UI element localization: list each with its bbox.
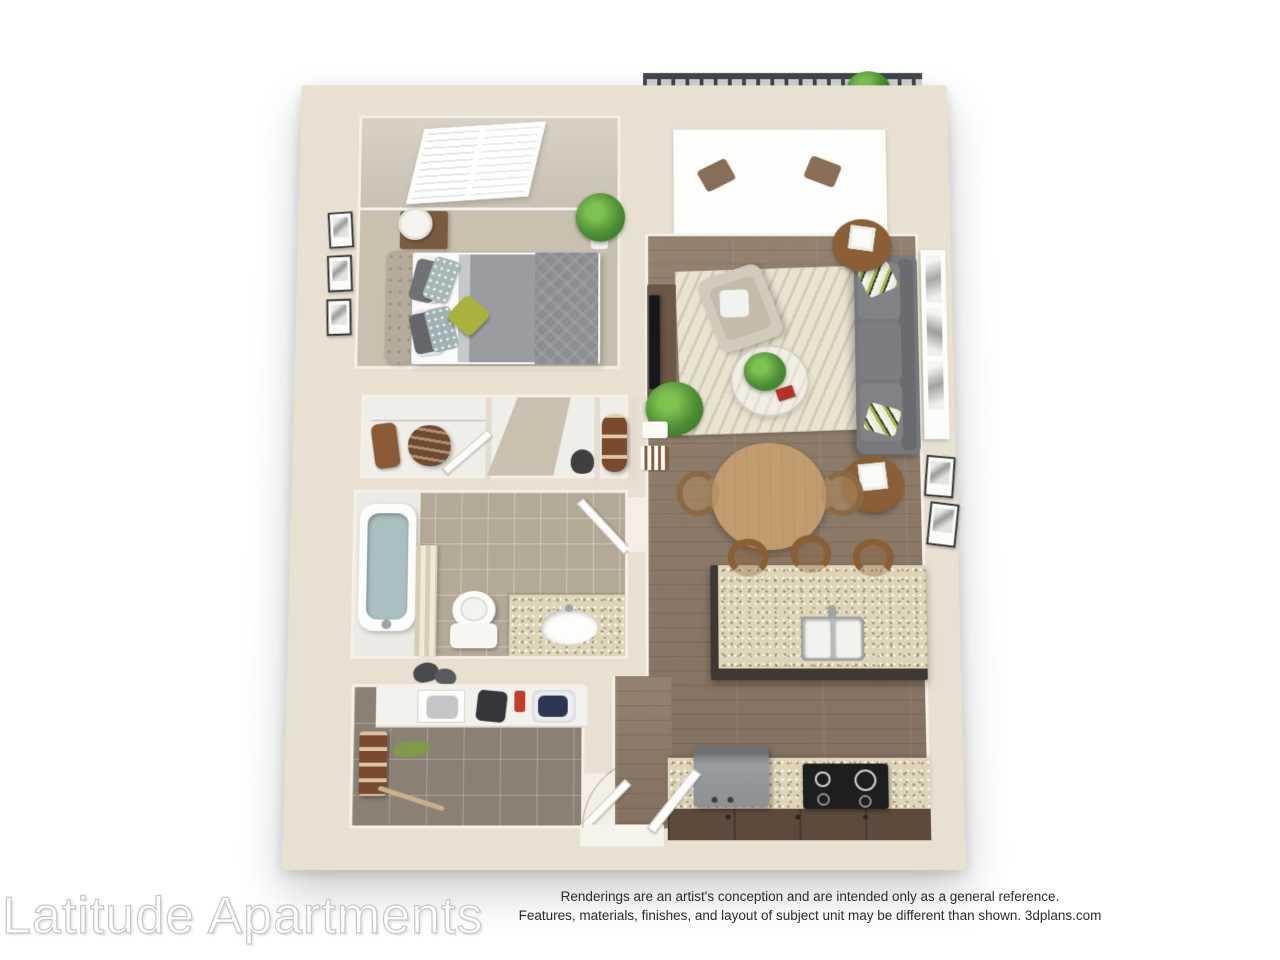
hanging-clothes <box>370 422 401 470</box>
disclaimer-line-2: Features, materials, finishes, and layou… <box>460 907 1160 926</box>
fire-extinguisher-icon <box>514 691 525 712</box>
linen-towels-striped <box>641 446 668 470</box>
bathtub-water <box>366 513 409 619</box>
duffel-bag <box>602 414 627 472</box>
bathroom-vanity <box>509 595 625 656</box>
watermark-logo: Latitude Apartments <box>2 886 484 946</box>
utility-counter <box>376 687 588 728</box>
bathroom-door-threshold <box>628 497 648 552</box>
mop-handle <box>377 785 445 811</box>
bed-headboard <box>384 251 413 364</box>
barstool <box>790 535 832 573</box>
bedroom-wall-art <box>328 211 355 249</box>
vanity-sink <box>540 610 597 644</box>
toilet-tank <box>450 623 497 648</box>
coffee-table-plant <box>744 352 787 391</box>
disclaimer-line-1: Renderings are an artist's conception an… <box>460 888 1160 907</box>
building-shell <box>282 85 966 870</box>
desk-chair <box>571 449 594 473</box>
dining-chair <box>820 471 864 516</box>
disclaimer: Renderings are an artist's conception an… <box>460 888 1160 925</box>
planter-box <box>848 225 876 252</box>
bed <box>411 253 600 364</box>
tub-faucet-icon <box>381 620 391 630</box>
barstool <box>728 539 769 577</box>
refrigerator <box>693 746 769 807</box>
sofa <box>854 255 921 454</box>
tv-icon <box>649 295 660 389</box>
apartment-3d-floor-plan <box>278 73 978 870</box>
bedroom-wall-art <box>327 255 353 293</box>
dining-wall-art <box>924 455 956 499</box>
island-faucet-icon <box>828 605 836 618</box>
glass-pane <box>679 135 777 232</box>
wall-art-panel <box>920 250 949 439</box>
dining-chair <box>677 471 720 516</box>
cooktop-stove <box>803 764 889 809</box>
bed-patterned-throw <box>535 253 599 364</box>
dark-items <box>475 689 508 723</box>
bedroom-plant <box>575 193 625 242</box>
barstool <box>852 539 894 577</box>
closet-rod <box>372 420 486 422</box>
washer-icon <box>417 690 465 723</box>
island-sink <box>801 617 865 661</box>
bathroom-door-leaf <box>577 498 630 554</box>
armchair-pillow <box>719 289 749 317</box>
bedroom <box>354 115 620 368</box>
green-oval-rug <box>392 739 431 760</box>
folded-clothes-pile <box>408 425 451 466</box>
laundry-basket <box>532 690 576 723</box>
bathtub <box>358 504 417 631</box>
shower-curtain <box>414 545 437 656</box>
floor-plan-page: Latitude Apartments Renderings are an ar… <box>0 0 1280 960</box>
vanity-faucet-icon <box>565 604 573 612</box>
linen-towels-white <box>643 421 668 438</box>
dining-wall-art <box>926 501 960 548</box>
skylight-window-icon <box>406 121 546 204</box>
bathroom <box>350 490 628 659</box>
kitchen-lower-cabinets <box>668 809 932 841</box>
closet-row <box>360 395 628 479</box>
bedroom-wall-art <box>326 299 352 336</box>
entry-door-swing-arc <box>582 756 657 828</box>
utility-room <box>349 684 585 828</box>
